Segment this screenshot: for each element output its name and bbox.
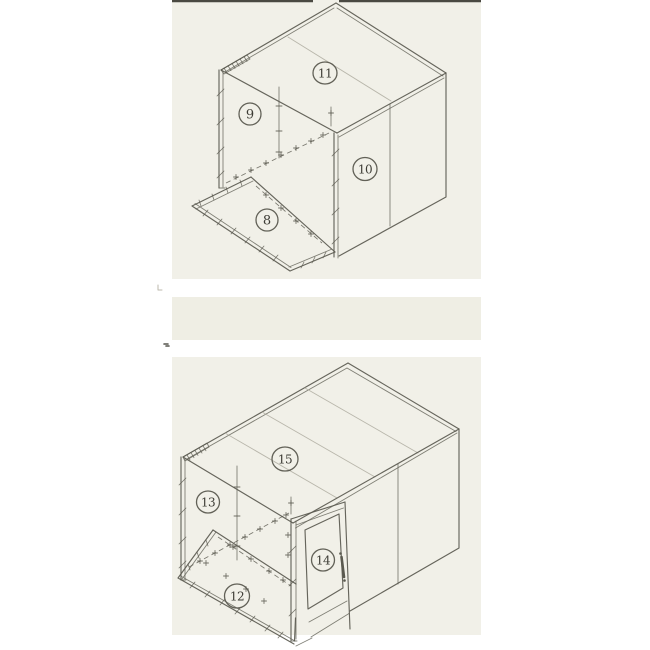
assembly-diagram-canvas: 8 9 10 11 <box>0 0 650 650</box>
scanned-page: 8 9 10 11 <box>0 0 650 650</box>
part-label-number: 8 <box>263 214 271 229</box>
part-label-number: 11 <box>318 67 332 81</box>
part-label-number: 15 <box>278 453 292 467</box>
bottom-diagram: 12 13 14 15 <box>172 357 481 646</box>
top-diagram-paper <box>172 0 481 279</box>
part-label-number: 9 <box>246 108 254 123</box>
top-diagram: 8 9 10 11 <box>172 0 481 279</box>
door-handle-bottom-dot <box>343 579 346 582</box>
part-label-number: 10 <box>358 163 372 177</box>
middle-paper-strip <box>172 297 481 340</box>
door-handle-top-dot <box>339 552 342 555</box>
part-label-number: 13 <box>201 496 215 510</box>
part-label-number: 14 <box>316 554 331 568</box>
part-label-number: 12 <box>230 590 244 604</box>
